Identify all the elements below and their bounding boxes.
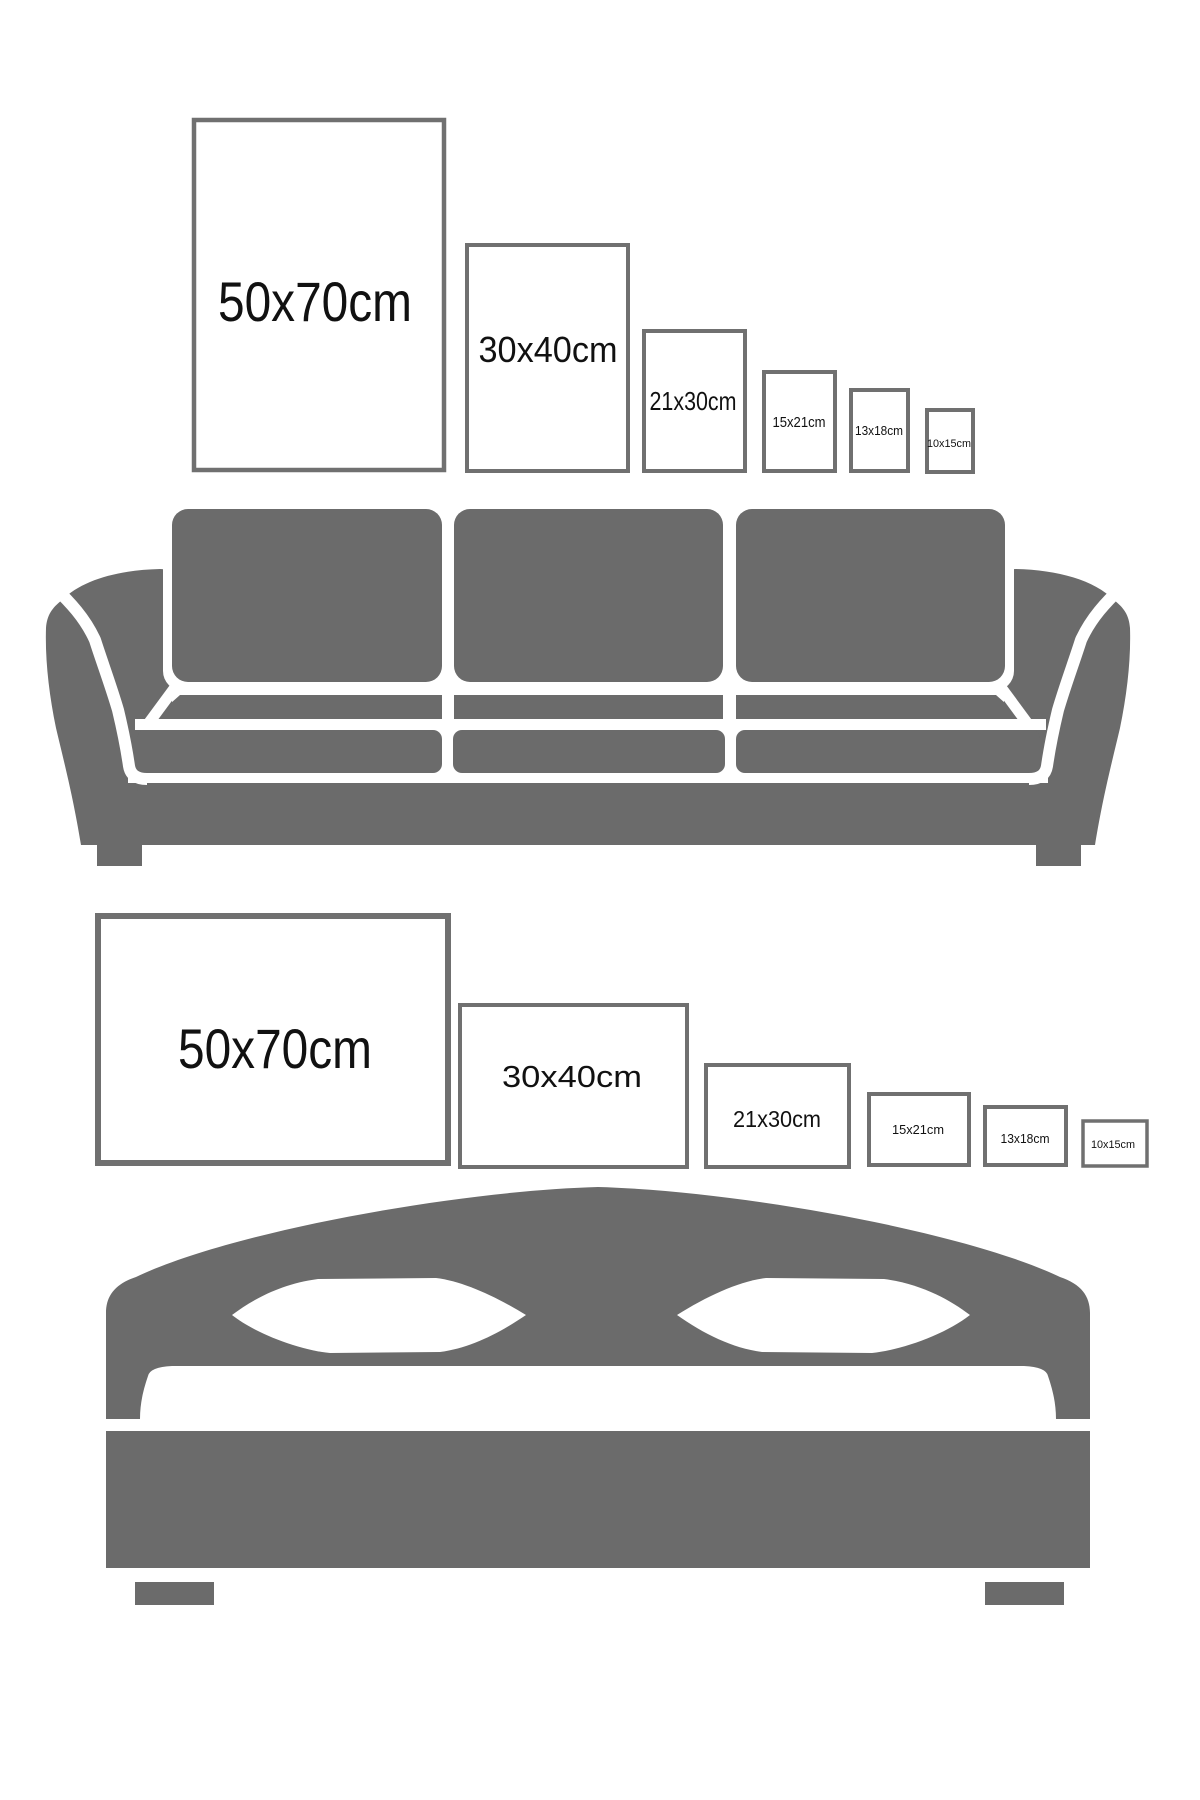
- svg-text:10x15cm: 10x15cm: [927, 438, 971, 450]
- svg-text:21x30cm: 21x30cm: [733, 1106, 821, 1132]
- svg-text:15x21cm: 15x21cm: [892, 1122, 944, 1137]
- svg-text:50x70cm: 50x70cm: [218, 270, 412, 333]
- svg-text:13x18cm: 13x18cm: [855, 423, 903, 438]
- svg-text:30x40cm: 30x40cm: [502, 1059, 642, 1094]
- svg-text:50x70cm: 50x70cm: [178, 1017, 372, 1080]
- svg-text:10x15cm: 10x15cm: [1091, 1139, 1135, 1151]
- svg-text:21x30cm: 21x30cm: [650, 386, 737, 416]
- svg-text:30x40cm: 30x40cm: [479, 329, 618, 370]
- svg-text:13x18cm: 13x18cm: [1001, 1131, 1050, 1146]
- svg-text:15x21cm: 15x21cm: [773, 414, 826, 431]
